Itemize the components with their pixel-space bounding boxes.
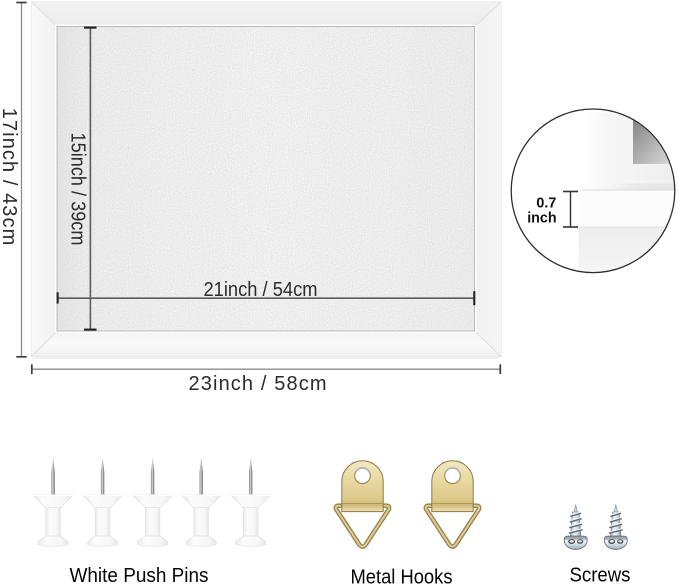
svg-text:inch: inch [527, 210, 556, 226]
svg-text:17inch / 43cm: 17inch / 43cm [0, 108, 20, 246]
svg-text:Metal Hooks: Metal Hooks [351, 566, 453, 587]
svg-text:23inch / 58cm: 23inch / 58cm [189, 373, 327, 395]
svg-text:White Push Pins: White Push Pins [70, 565, 209, 587]
svg-text:15inch / 39cm: 15inch / 39cm [66, 133, 88, 246]
svg-text:21inch / 54cm: 21inch / 54cm [204, 279, 318, 301]
svg-text:0.7: 0.7 [536, 196, 556, 212]
svg-text:Screws: Screws [570, 565, 631, 587]
